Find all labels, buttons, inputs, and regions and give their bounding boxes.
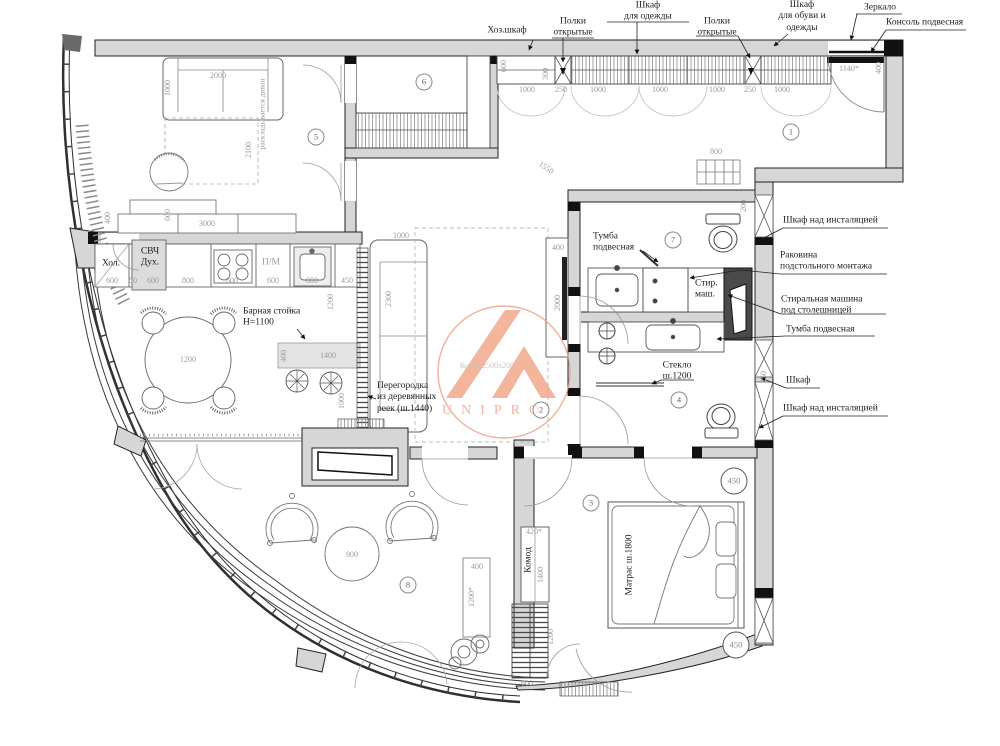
- room6-wardrobe: [356, 56, 490, 148]
- dresser: [521, 527, 549, 602]
- carpet: [415, 228, 548, 442]
- hall-door: [422, 459, 468, 505]
- round-table: [325, 527, 379, 581]
- bathroom: [580, 214, 752, 444]
- doormat: [697, 160, 740, 184]
- shaft-dark: [724, 268, 752, 340]
- dining-table: [141, 308, 236, 413]
- tv-niche: [546, 238, 568, 357]
- slat-partition: [357, 248, 368, 430]
- hall-closets: [497, 56, 831, 84]
- room5-cabinets: [118, 200, 296, 233]
- side-cabinet: [463, 558, 490, 637]
- bar-counter: [278, 343, 360, 394]
- living-sofa: [370, 240, 427, 432]
- floor-plan-drawing: [0, 0, 1000, 746]
- lounge-armchair-2: [386, 492, 438, 544]
- facade-line: [140, 438, 302, 441]
- lounge-armchair-1: [266, 494, 318, 546]
- room5-doors: [303, 65, 341, 201]
- toilet-room4: [705, 404, 738, 438]
- toilet-room7: [706, 214, 740, 252]
- floor-plan: UNIPRO Хоз.шкафПолки открытыеШкаф для од…: [0, 0, 1000, 746]
- bed: [608, 502, 744, 628]
- bedroom-curved-wall: [516, 632, 762, 690]
- plant: [449, 635, 489, 669]
- washing-machine: [643, 268, 688, 312]
- tv-unit: [302, 419, 408, 486]
- closet-door-swings: [497, 86, 831, 116]
- entry-door: [828, 56, 884, 112]
- radiator: [560, 682, 618, 696]
- room5-armchair: [150, 153, 188, 191]
- kitchen-counter: [95, 240, 360, 290]
